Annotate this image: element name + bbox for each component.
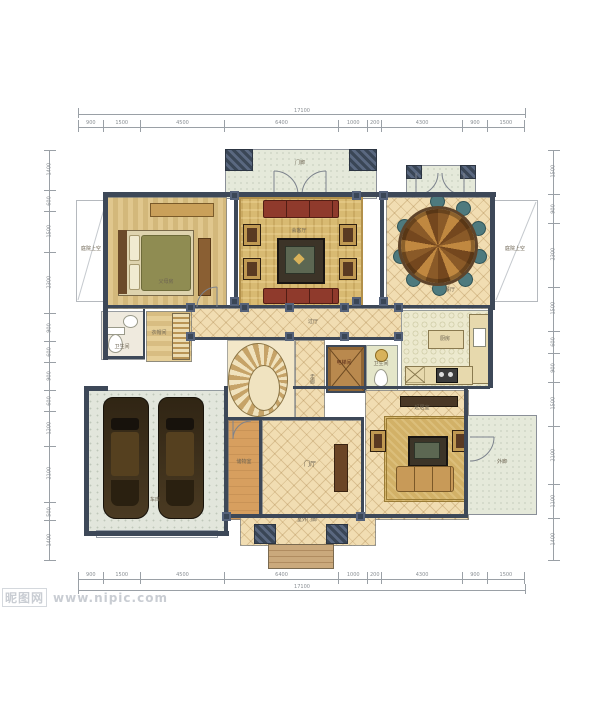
column [230,297,239,306]
garage-label: 车库 [138,497,172,503]
dimension-segment: 900 [548,353,560,382]
dimension-top-segments: 900150045006400100020043009001500 [78,120,525,132]
dimension-segment: 1000 [338,572,367,584]
dimension-segment: 2300 [44,252,56,313]
elevator-label: 电梯间 [326,360,362,366]
column [394,303,403,312]
entry-steps [268,544,334,569]
dimension-segment: 900 [462,572,487,584]
dimension-segment: 1500 [103,572,140,584]
dimension-segment: 600 [44,190,56,211]
armchair [243,224,261,246]
dimension-value: 4300 [416,120,429,132]
stove-burner [448,372,453,377]
car-roof [111,432,139,476]
dimension-value: 17100 [294,584,310,594]
dimension-segment: 900 [44,362,56,390]
dimension-value: 1000 [347,572,360,584]
dimension-segment: 600 [44,341,56,362]
wall [104,305,494,308]
dimension-value: 1000 [347,120,360,132]
dimension-value: 6400 [275,572,288,584]
dimension-value: 600 [47,395,53,406]
wall [104,192,496,197]
dimension-segment: 6400 [224,572,338,584]
dimension-value: 600 [551,337,557,348]
dimension-value: 200 [370,572,380,584]
column [285,332,294,341]
dimension-segment: 1500 [44,211,56,253]
bathroom2-label: 卫生间 [366,361,396,367]
elevator-x-icon [328,347,364,391]
stair-landing [248,365,280,411]
column [222,512,231,521]
dimension-value: 1500 [500,120,513,132]
dimension-bottom-segments: 900150045006400100020043009001500 [78,572,525,584]
dimension-value: 1500 [500,572,513,584]
column [356,512,365,521]
car-windshield [166,418,194,430]
foyer-label: 门厅 [284,461,336,469]
cloak-room-label: 衣帽间 [144,330,174,336]
wall [488,306,493,388]
door-swing-icon [196,286,218,308]
dimension-value: 2100 [551,450,557,461]
stair-zone [227,340,295,420]
dimension-value: 900 [47,371,53,382]
dimension-value: 600 [47,195,53,206]
wall [84,386,89,536]
dining-chair [471,221,486,236]
dimension-value: 2300 [47,278,53,289]
dimension-segment: 1000 [338,120,367,132]
column [379,191,388,200]
porch-pillar [326,524,348,544]
hallway-label: 过厅 [299,319,327,325]
dimension-value: 900 [86,120,96,132]
kitchen-label: 厨房 [428,336,462,342]
wall [293,386,490,389]
car-windshield [111,418,139,430]
armchair [339,258,357,280]
dimension-segment: 500 [44,502,56,521]
dimension-value: 900 [47,322,53,333]
floor-plan-image: 17100 900150045006400100020043009001500 … [0,0,600,727]
column [379,297,388,306]
dimension-value: 600 [47,346,53,357]
dimension-segment: 900 [462,120,487,132]
wall [234,192,238,308]
dimension-segment: 1500 [487,120,524,132]
courtyard-label: 庭院上空 [494,246,536,252]
dimension-segment: 900 [78,572,103,584]
dimension-segment: 1200 [44,411,56,446]
formal-living-label: 会客厅 [275,228,323,234]
sofa [263,200,339,218]
dimension-segment: 4500 [140,572,224,584]
column [186,332,195,341]
dimension-segment: 4300 [381,120,462,132]
car-rear [111,480,139,506]
dimension-segment: 1500 [548,382,560,426]
column [352,297,361,306]
dimension-value: 900 [551,362,557,373]
dimension-value: 1400 [47,165,53,176]
porch-pillar [254,524,276,544]
sofa [396,466,454,492]
wall [84,386,108,391]
dimension-value: 900 [551,204,557,215]
column [394,332,403,341]
dimension-segment: 900 [44,313,56,341]
dimension-value: 1400 [47,535,53,546]
dimension-right-segments: 1500900230015006009001500210011001400 [548,150,560,561]
cabinet-x-icon [405,366,425,383]
dimension-segment: 600 [44,390,56,411]
parents-room-label: 父母房 [138,279,194,285]
dimension-segment: 4300 [381,572,462,584]
wall [103,192,108,360]
dimension-value: 17100 [294,108,310,118]
porch-label: 门廊 [225,160,375,166]
storage-label: 储物室 [227,459,261,465]
wall [84,531,229,536]
dining-chair [456,201,471,216]
dimension-segment: 900 [548,194,560,223]
sink-basin [123,315,138,328]
dimension-value: 1500 [551,167,557,178]
dimension-value: 900 [470,572,480,584]
column [285,303,294,312]
dimension-segment: 1500 [487,572,524,584]
watermark: 昵图网 www.nipic.com [2,588,168,607]
column [352,191,361,200]
dimension-value: 6400 [275,120,288,132]
dimension-segment: 1100 [548,484,560,518]
car-roof [166,432,194,476]
wall [464,386,468,518]
dimension-left-segments: 1400600150023009006009006001200210050014… [44,150,56,561]
dimension-segment: 1400 [548,518,560,560]
sofa [263,288,339,304]
dimension-value: 1500 [551,304,557,315]
armchair [243,258,261,280]
watermark-logo: 昵图网 [2,588,47,607]
dimension-value: 1500 [47,227,53,238]
console-table [334,444,348,492]
dimension-value: 1500 [115,120,128,132]
dimension-value: 900 [470,120,480,132]
dimension-value: 500 [47,506,53,517]
wall [259,418,262,518]
armchair [370,430,386,452]
armchair [339,224,357,246]
door-swing-icon [232,420,252,440]
dimension-value: 1100 [551,496,557,507]
dimension-value: 4500 [176,572,189,584]
column [240,303,249,312]
stove-burner [439,372,444,377]
dimension-segment: 6400 [224,120,338,132]
wall [143,309,145,359]
dining-label: 餐厅 [432,287,468,293]
dimension-value: 900 [86,572,96,584]
dimension-segment: 2100 [44,446,56,502]
dimension-segment: 200 [367,120,381,132]
hallway-floor [190,308,402,340]
pillow [129,235,140,261]
dimension-value: 4300 [416,572,429,584]
dimension-segment: 900 [78,120,103,132]
living-room-label: 起居室 [400,405,444,411]
kitchen-sink [473,328,486,347]
wall [226,514,466,518]
dimension-value: 4500 [176,120,189,132]
column [186,303,195,312]
coffee-table-top [414,442,440,459]
veranda-floor [467,415,537,515]
dimension-segment: 4500 [140,120,224,132]
dimension-value: 2300 [551,250,557,261]
dimension-segment: 1400 [44,150,56,190]
toilet [374,369,388,387]
dimension-value: 1200 [47,423,53,434]
foyer-floor [262,420,364,520]
dresser [150,203,214,217]
dimension-segment: 200 [367,572,381,584]
pillow [129,264,140,290]
dimension-segment: 1500 [548,150,560,194]
dimension-value: 1500 [551,399,557,410]
dimension-segment: 1500 [548,287,560,331]
wall [380,192,384,308]
dimension-top-total: 17100 [78,108,526,118]
wall [361,418,364,518]
dimension-segment: 1500 [103,120,140,132]
dimension-segment: 600 [548,331,560,353]
wall [490,192,495,310]
veranda-label: 外廊 [484,459,520,465]
dimension-value: 2100 [47,469,53,480]
dimension-segment: 2100 [548,426,560,485]
column [340,303,349,312]
watermark-url: www.nipic.com [53,591,168,605]
dimension-value: 1500 [115,572,128,584]
column [340,332,349,341]
wall [188,337,400,340]
dining-table [401,209,475,283]
wall [103,356,145,359]
dimension-segment: 1400 [44,520,56,560]
dimension-value: 200 [370,120,380,132]
dimension-value: 1400 [551,534,557,545]
column [230,191,239,200]
bed-headboard [118,230,127,294]
dimension-segment: 2300 [548,223,560,287]
